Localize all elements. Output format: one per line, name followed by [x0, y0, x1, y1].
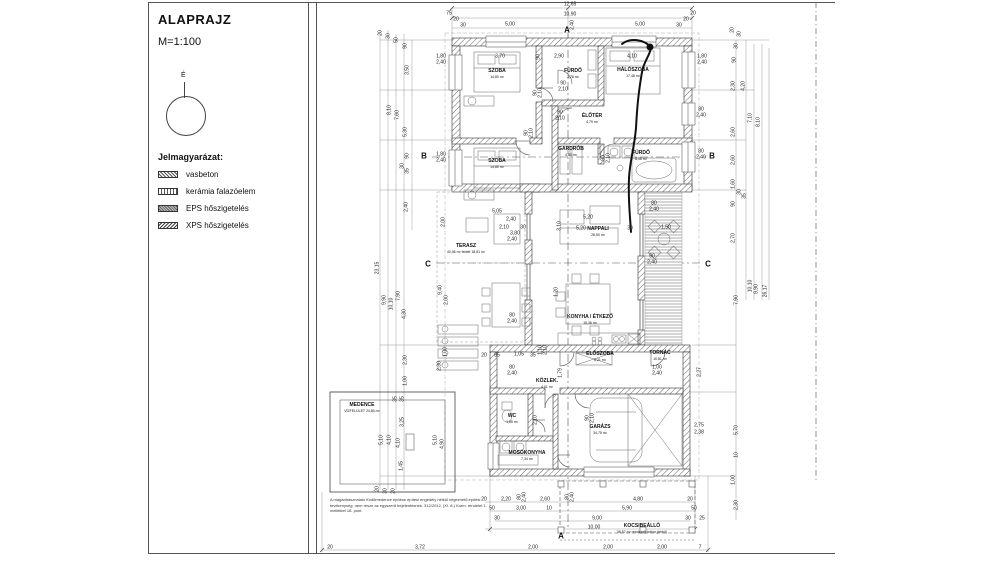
dimension-label: 4,10 [397, 438, 402, 448]
dimension-label: 2,40 [571, 20, 576, 30]
dimension-label: 30 [627, 227, 633, 232]
dimension-label: 2,40 [647, 261, 657, 266]
dimension-label: 2,60 [540, 498, 550, 503]
dimension-label: 10,90 [564, 13, 577, 18]
dimension-label: 2,10 [555, 117, 565, 122]
room-label: KONYHA / ÉTKEZŐ15,36 m² [567, 315, 613, 325]
dimension-label: 90 [733, 57, 738, 63]
dimension-label: 1,05 [514, 353, 524, 358]
dimension-label: 9,40 [439, 285, 444, 295]
dimension-label: 9,90 [755, 284, 760, 294]
dimension-label: 2,40 [436, 61, 446, 66]
dimension-label: 2,40 [507, 372, 517, 377]
dimension-label: 50 [395, 37, 400, 43]
dimension-label: 5,20 [583, 216, 593, 221]
dimension-label: 35 [743, 193, 748, 199]
room-label: ÉLŐTÉR4,79 m² [582, 114, 602, 124]
dimension-label: 2,30 [735, 500, 740, 510]
dimension-label: 30 [738, 31, 743, 37]
room-label: SZOBA14,80 m² [488, 69, 506, 79]
dimension-label: 50 [691, 507, 697, 512]
dimension-label: 20 [376, 486, 381, 492]
dimension-label: 2,75 [694, 424, 704, 429]
dimension-label: 2,10 [539, 88, 544, 98]
dimension-label: 30 [735, 43, 740, 49]
dimension-label: 25 [699, 517, 705, 522]
dimension-label: 2,10 [534, 415, 539, 425]
dimension-label: 2,00 [528, 546, 538, 551]
dimension-label: 2,90 [554, 55, 564, 60]
dimension-label: 35 [530, 354, 536, 359]
dimension-label: 3,00 [516, 507, 526, 512]
dimension-label: 2,00 [445, 295, 450, 305]
dimension-label: 8,10 [757, 117, 762, 127]
dimension-label: 10,10 [390, 298, 395, 311]
room-label: SZOBA14,80 m² [488, 159, 506, 169]
dimension-label: 2,30 [732, 81, 737, 91]
dimension-label: 10,00 [588, 526, 601, 531]
dimension-label: 2,70 [732, 233, 737, 243]
dimension-label: 2,10 [558, 88, 568, 93]
section-marker: A [564, 26, 570, 35]
dimension-label: 2,40 [405, 202, 410, 212]
section-marker: C [705, 260, 711, 269]
pool-regulation-note: A magánhasználatú fürdőmedence építése é… [330, 497, 500, 514]
dimension-label: 1,45 [400, 461, 405, 471]
dimension-label: 2,10 [530, 128, 535, 138]
dimension-label: 2,00 [603, 546, 613, 551]
dimension-label: 1,79 [559, 368, 564, 378]
dimension-label: 30 [676, 24, 682, 29]
dimension-label: 3,70 [495, 55, 505, 60]
dimension-label: 30 [685, 517, 691, 522]
dimension-label: 30 [494, 517, 500, 522]
dimension-label: 4,10 [388, 435, 393, 445]
dimension-label: 12,65 [564, 3, 577, 8]
dimension-label: 30 [387, 33, 392, 39]
dimension-label: 2,40 [696, 114, 706, 119]
dimension-label: 4,80 [633, 498, 643, 503]
room-label: KOCSIBEÁLLÓ36,57 m² rendezett beton (tér… [617, 524, 667, 534]
dimension-label: 1,00 [444, 347, 449, 357]
room-label: HÁLÓSZOBA17,48 m² [617, 68, 649, 78]
dimension-label: 2,30 [404, 355, 409, 365]
dimension-label: 23,15 [376, 262, 381, 275]
dimension-label: 2,40 [696, 156, 706, 161]
dimension-label: 1,00 [404, 376, 409, 386]
dimension-label: 5,10 [380, 435, 385, 445]
dimension-label: 2,10 [499, 226, 509, 231]
dimension-label: 35 [401, 396, 406, 402]
room-label: TORNÁC10,81 m² [649, 351, 670, 361]
dimension-label: 20 [731, 27, 736, 33]
dimension-label: 90 [406, 153, 411, 159]
dimension-label: 2,60 [732, 127, 737, 137]
dimension-label: 5,20 [576, 227, 586, 232]
drawing-sheet: ALAPRAJZ M=1:100 É Jelmagyarázat: vasbet… [0, 0, 1000, 562]
room-label: FÜRDŐ3,78 m² [564, 69, 582, 79]
section-marker: B [421, 152, 427, 161]
dimension-label: 30 [384, 488, 389, 494]
dimension-label: 90 [537, 54, 542, 60]
dimension-label: 2,38 [694, 431, 704, 436]
dimension-label: 4,90 [441, 439, 446, 449]
dimension-label: 30 [460, 24, 466, 29]
room-label: TERASZ40,96 m² fedett 18,81 m² [447, 244, 485, 254]
dimension-label: 5,90 [622, 507, 632, 512]
dimension-label: 5,05 [492, 210, 502, 215]
dimension-label: 10 [546, 507, 552, 512]
dimension-label: 8,10 [388, 105, 393, 115]
dimension-label: 9,00 [592, 517, 602, 522]
dimension-label: 7 [699, 546, 702, 551]
dimension-label: 2,40 [571, 492, 576, 502]
room-label: KÖZLEK.4,01 m² [536, 379, 558, 389]
dimension-label: 20 [687, 498, 693, 503]
dimension-label: 5,00 [635, 23, 645, 28]
dimension-label: 7,90 [735, 295, 740, 305]
dimension-label: 90 [732, 201, 737, 207]
dimension-label: 5,00 [505, 23, 515, 28]
dimension-label: 1,00 [732, 475, 737, 485]
room-label: GARDRÓB4,80 m² [558, 147, 584, 157]
dimension-label: 30 [520, 226, 526, 231]
dimension-label: 2,10 [607, 153, 612, 163]
dimension-label: 1,20 [555, 287, 560, 297]
dimension-label: 2,40 [507, 238, 517, 243]
dimension-label: 2,30 [438, 361, 443, 371]
dimension-label: 3,10 [558, 221, 563, 231]
room-label: FÜRDŐ8,06 m² [632, 151, 650, 161]
floorplan-drawing [0, 0, 1000, 562]
dimension-label: 20 [481, 354, 487, 359]
dimension-label: 7,90 [397, 291, 402, 301]
dimension-label: 26,17 [764, 285, 769, 298]
room-label: NAPPALI28,50 m² [587, 227, 609, 237]
walls [452, 38, 692, 476]
dimension-label: 4,10 [627, 55, 637, 60]
dimension-label: 75 [446, 12, 452, 17]
dimension-label: 2,00 [657, 546, 667, 551]
room-label: MOSÓKONYHA7,34 m² [509, 451, 546, 461]
dimension-label: 2,40 [652, 372, 662, 377]
dimension-label: 20 [683, 18, 689, 23]
dimension-label: 1,60 [732, 179, 737, 189]
dimension-label: 20 [690, 12, 696, 17]
dimension-label: 3,72 [415, 546, 425, 551]
dimension-label: 2,40 [506, 218, 516, 223]
dimension-label: 2,40 [649, 208, 659, 213]
dimension-label: 2,40 [436, 159, 446, 164]
dimension-label: 7,10 [749, 113, 754, 123]
dimension-label: 20 [327, 546, 333, 551]
dimension-label: 2,00 [442, 217, 447, 227]
dimension-label: 20 [453, 18, 459, 23]
section-marker: B [709, 152, 715, 161]
dimension-label: 2,40 [697, 61, 707, 66]
dimension-label: 85 [494, 354, 500, 359]
dimension-label: 35 [394, 396, 399, 402]
dimension-label: 20 [379, 30, 384, 36]
dimension-label: 20 [392, 488, 397, 494]
room-label: WC1,85 m² [506, 414, 518, 424]
dimension-label: 2,20 [501, 498, 511, 503]
dimension-label: 90 [404, 43, 409, 49]
dimension-label: 1,50 [661, 226, 671, 231]
section-marker: C [425, 260, 431, 269]
dimension-label: 4,20 [742, 81, 747, 91]
dimension-label: 7,60 [396, 110, 401, 120]
dimension-label: 5,30 [404, 127, 409, 137]
dimension-label: 4,30 [403, 309, 408, 319]
dimension-label: 9,90 [383, 295, 388, 305]
dimension-label: 3,50 [406, 65, 411, 75]
room-label: GARÁZS34,75 m² [589, 425, 610, 435]
room-label: ELŐSZOBA6,21 m² [586, 352, 614, 362]
dimension-label: 2,27 [698, 367, 703, 377]
dimension-label: 2,10 [591, 413, 596, 423]
dimension-label: 5,10 [434, 435, 439, 445]
dimension-label: 35 [406, 168, 411, 174]
dimension-label: 10 [735, 452, 740, 458]
dimension-label: 3,25 [401, 417, 406, 427]
section-marker: A [558, 532, 564, 541]
dimension-label: 2,40 [523, 492, 528, 502]
room-label: MEDENCEVÍZFELÜLET 24,80 m² [344, 403, 380, 413]
dimension-label: 2,40 [507, 320, 517, 325]
dimension-label: 5,70 [735, 425, 740, 435]
dimension-label: 2,60 [732, 155, 737, 165]
dimension-label: 2,10 [544, 345, 549, 355]
